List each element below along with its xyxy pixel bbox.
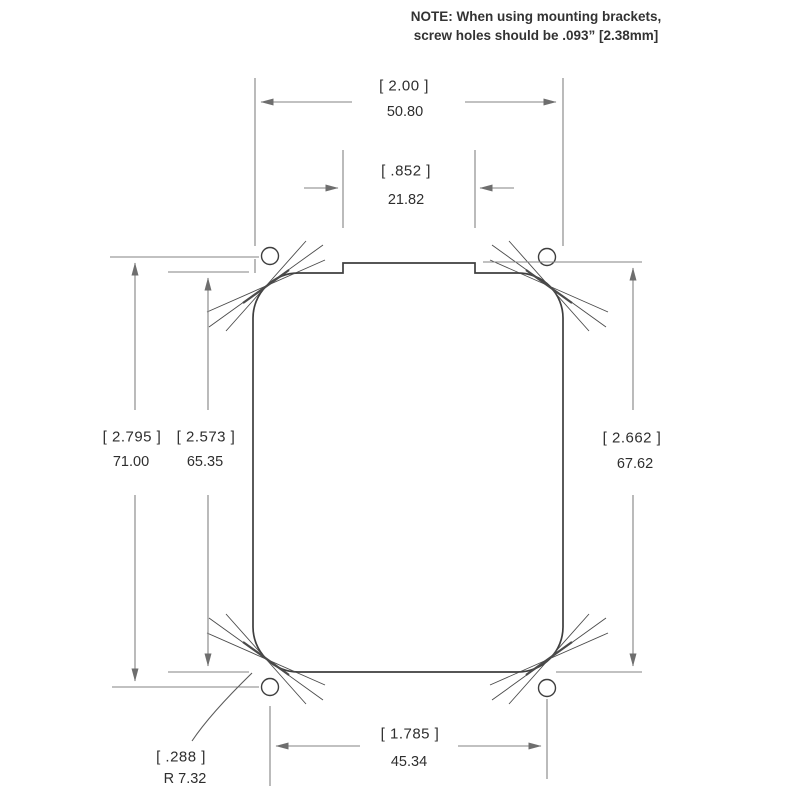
cutout-outline — [253, 263, 563, 672]
corner-burst-top-right — [490, 241, 608, 331]
dim-cutout-height-mm: 65.35 — [187, 454, 223, 470]
drawing-canvas — [0, 0, 800, 800]
dim-hole-span-horizontal-inches: [ 1.785 ] — [381, 726, 440, 743]
drawing-page: NOTE: When using mounting brackets, scre… — [0, 0, 800, 800]
corner-burst-bottom-left — [207, 614, 325, 704]
dim-corner-radius-inches: [ .288 ] — [156, 749, 206, 766]
dim-overall-width-inches: [ 2.00 ] — [379, 78, 429, 95]
mounting-note-line2: screw holes should be .093” [2.38mm] — [385, 27, 687, 46]
screw-hole-bottom-left — [262, 679, 279, 696]
dim-hole-span-vertical-mm: 71.00 — [113, 454, 149, 470]
dimension-lines — [135, 102, 633, 746]
dim-notch-width-inches: [ .852 ] — [381, 163, 431, 180]
dim-right-height-mm: 67.62 — [617, 456, 653, 472]
dim-hole-span-horizontal-mm: 45.34 — [391, 754, 427, 770]
radius-leader-line — [192, 673, 252, 741]
dim-cutout-height-inches: [ 2.573 ] — [177, 429, 236, 446]
mounting-note: NOTE: When using mounting brackets, scre… — [385, 8, 687, 46]
dim-overall-width-mm: 50.80 — [387, 104, 423, 120]
corner-burst-top-left — [207, 241, 325, 331]
dim-notch-width-mm: 21.82 — [388, 192, 424, 208]
dim-right-height-inches: [ 2.662 ] — [603, 430, 662, 447]
screw-hole-top-left — [262, 248, 279, 265]
dim-corner-radius-mm: R 7.32 — [164, 771, 207, 787]
screw-hole-top-right — [539, 249, 556, 266]
mounting-note-line1: NOTE: When using mounting brackets, — [385, 8, 687, 27]
screw-hole-bottom-right — [539, 680, 556, 697]
dim-hole-span-vertical-inches: [ 2.795 ] — [103, 429, 162, 446]
corner-burst-bottom-right — [490, 614, 608, 704]
